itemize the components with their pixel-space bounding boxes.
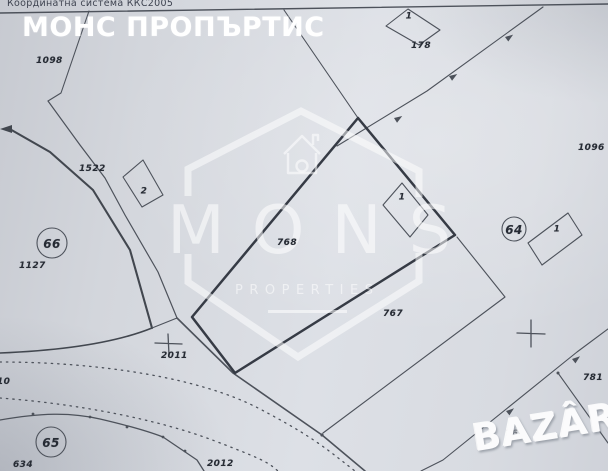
parcel-label-178: 178 (411, 42, 431, 51)
point-label-2012: 2012 (207, 460, 234, 469)
parcel-label-781: 781 (583, 374, 603, 383)
parcel-label-10-clipped: 10 (0, 378, 10, 387)
watermark-brand-text: MONS (167, 191, 478, 269)
watermark-brand-subtext: PROPERTIES (235, 283, 380, 298)
point-label-2011: 2011 (161, 352, 188, 361)
coordinate-system-label: Координатна система ККС2005 (7, 0, 173, 9)
parcel-label-1522: 1522 (79, 165, 106, 174)
watermark-underline (268, 310, 347, 313)
circle-label-64: 64 (505, 224, 523, 236)
parcel-label-767: 767 (383, 310, 403, 319)
parcel-label-1098: 1098 (36, 57, 63, 66)
circle-label-65: 65 (42, 437, 60, 449)
building-label-64-1: 1 (554, 226, 561, 235)
parcel-label-1096: 1096 (578, 144, 605, 153)
parcel-label-634: 634 (13, 461, 33, 470)
house-icon (284, 135, 320, 173)
parcel-label-1127: 1127 (19, 262, 46, 271)
building-label-2: 2 (141, 188, 148, 197)
building-label-178-1: 1 (406, 13, 413, 22)
cadastral-map-scan: MONS PROPERTIES Координатна система ККС2… (0, 0, 608, 471)
circle-label-66: 66 (43, 238, 61, 250)
parcel-label-768: 768 (277, 239, 297, 248)
building-label-768-1: 1 (399, 194, 406, 203)
logo-roof-chevron (188, 111, 419, 197)
company-title: МОНС ПРОПЪРТИС (22, 12, 325, 43)
